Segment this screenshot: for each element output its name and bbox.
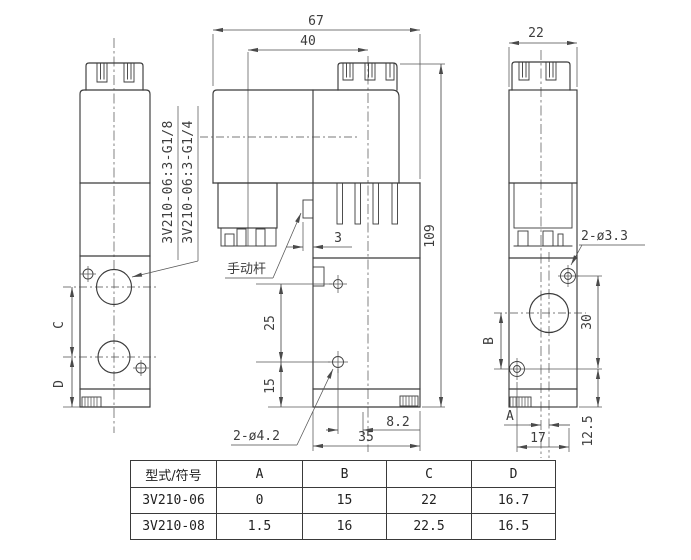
table-row: 3V210-06 0 15 22 16.7 (131, 488, 556, 514)
label-model-g18: 3V210-06:3-G1/8 (161, 120, 176, 243)
dim-12-5: 12.5 (581, 415, 596, 446)
cell-b: 15 (303, 488, 387, 514)
terminal-pins (225, 229, 265, 246)
label-mount-holes-front: 2-ø4.2 (233, 429, 280, 444)
col-header-b: B (303, 461, 387, 488)
exhaust-knurl (82, 397, 101, 407)
cell-model: 3V210-08 (131, 514, 217, 540)
dim-109: 109 (423, 224, 438, 247)
cap-terminals (343, 63, 394, 80)
cell-a: 0 (217, 488, 303, 514)
cell-a: 1.5 (217, 514, 303, 540)
dim-b: B (482, 337, 497, 345)
mount-hole-top (558, 265, 579, 287)
col-header-d: D (472, 461, 556, 488)
cell-d: 16.7 (472, 488, 556, 514)
dim-d: D (52, 380, 67, 388)
front-view: 67 40 109 3 25 15 8.2 35 2-ø4.2 手动杆 (200, 14, 445, 452)
cell-d: 16.5 (472, 514, 556, 540)
exhaust-knurl (400, 396, 418, 406)
dim-35: 35 (358, 430, 374, 445)
small-hole-bottom (133, 360, 149, 376)
coil-lower-block (218, 183, 277, 228)
label-model-g14: 3V210-06:3-G1/4 (181, 120, 196, 243)
label-manual-lever: 手动杆 (227, 262, 266, 277)
solenoid-outline (213, 90, 399, 183)
drawing-page: C D 3V210-06:3-G1/8 3V210-06:3-G1/4 (0, 0, 691, 560)
spec-table: 型式/符号 A B C D 3V210-06 0 15 22 16.7 3V21… (130, 460, 556, 540)
table-header-row: 型式/符号 A B C D (131, 461, 556, 488)
dim-15: 15 (263, 378, 278, 394)
dim-22: 22 (528, 26, 544, 41)
dim-a: A (506, 409, 514, 424)
port-label-leader (132, 261, 198, 277)
col-header-model: 型式/符号 (131, 461, 217, 488)
cell-c: 22 (387, 488, 472, 514)
terminal-strip (221, 228, 276, 246)
dim-8-2: 8.2 (386, 415, 409, 430)
dim-25: 25 (263, 315, 278, 331)
col-header-c: C (387, 461, 472, 488)
fins (337, 183, 398, 224)
dim-c: C (52, 321, 67, 329)
dim-3: 3 (334, 231, 342, 246)
exhaust-knurl (510, 397, 531, 407)
manual-lever (303, 200, 313, 218)
dim-17: 17 (530, 431, 546, 446)
coil-lower-block (514, 183, 572, 228)
cap-terminals (97, 63, 134, 82)
cap-terminals (519, 62, 556, 80)
label-mount-holes-side: 2-ø3.3 (581, 229, 628, 244)
cell-b: 16 (303, 514, 387, 540)
terminal-pins (518, 231, 563, 246)
dim-40: 40 (300, 34, 316, 49)
left-view: C D 3V210-06:3-G1/8 3V210-06:3-G1/4 (52, 38, 198, 433)
side-view: 22 2-ø3.3 30 12.5 B A 17 (482, 26, 645, 458)
body-outline (509, 90, 577, 407)
dim-30: 30 (580, 314, 595, 330)
valve-body-outline (313, 183, 420, 407)
cell-c: 22.5 (387, 514, 472, 540)
col-header-a: A (217, 461, 303, 488)
dim-67: 67 (308, 14, 324, 29)
body-outline (80, 90, 150, 407)
cell-model: 3V210-06 (131, 488, 217, 514)
side-boss (313, 267, 324, 286)
small-hole-top (80, 266, 96, 282)
table-row: 3V210-08 1.5 16 22.5 16.5 (131, 514, 556, 540)
